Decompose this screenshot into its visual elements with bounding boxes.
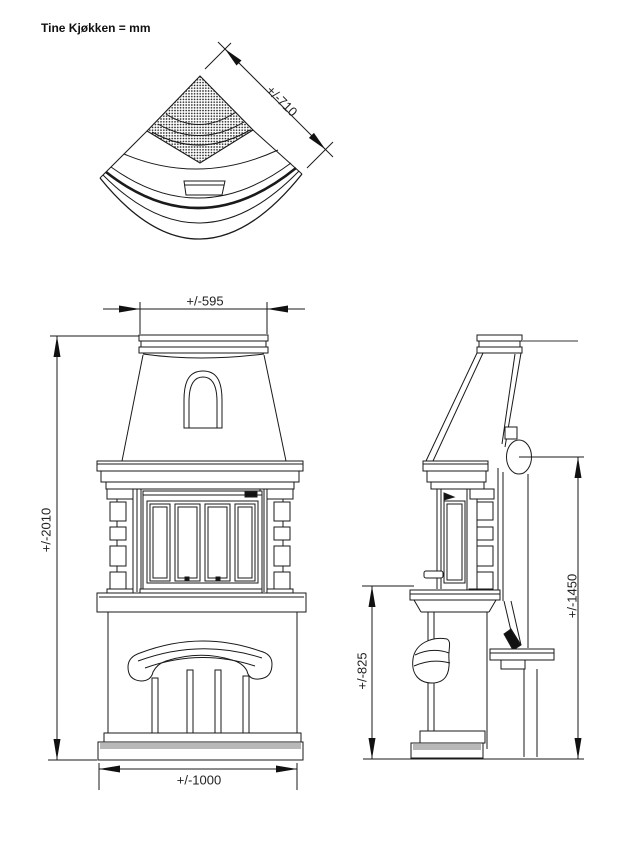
dimension-label-2010: +/-2010 [39, 508, 54, 552]
dimension-label-1450: +/-1450 [565, 574, 580, 618]
glass-doors [140, 491, 262, 593]
dimension-label-825: +/-825 [355, 652, 370, 689]
drawing-title: Tine Kjøkken = mm [41, 21, 150, 35]
scroll-ornament [413, 638, 450, 683]
dimension-label-1000: +/-1000 [177, 773, 221, 788]
door-latch [245, 492, 257, 497]
door-handle [424, 571, 443, 578]
side-quoins [467, 489, 494, 592]
dimension-label-595: +/-595 [186, 294, 223, 309]
left-pillar [107, 489, 133, 593]
rear-shelf [490, 649, 554, 660]
right-pillar [267, 489, 293, 593]
vent-arch [184, 371, 222, 428]
fireplace-drawing-canvas [0, 0, 632, 860]
front-view-drawing [97, 335, 306, 760]
technical-drawing-page: Tine Kjøkken = mm +/-710 +/-595 +/-2010 … [0, 0, 632, 860]
side-view-drawing [410, 335, 584, 758]
hearth-shelf [97, 593, 306, 612]
hatch-area [147, 76, 253, 163]
vent-top-view [184, 181, 225, 195]
door-handle-catch [444, 493, 454, 500]
